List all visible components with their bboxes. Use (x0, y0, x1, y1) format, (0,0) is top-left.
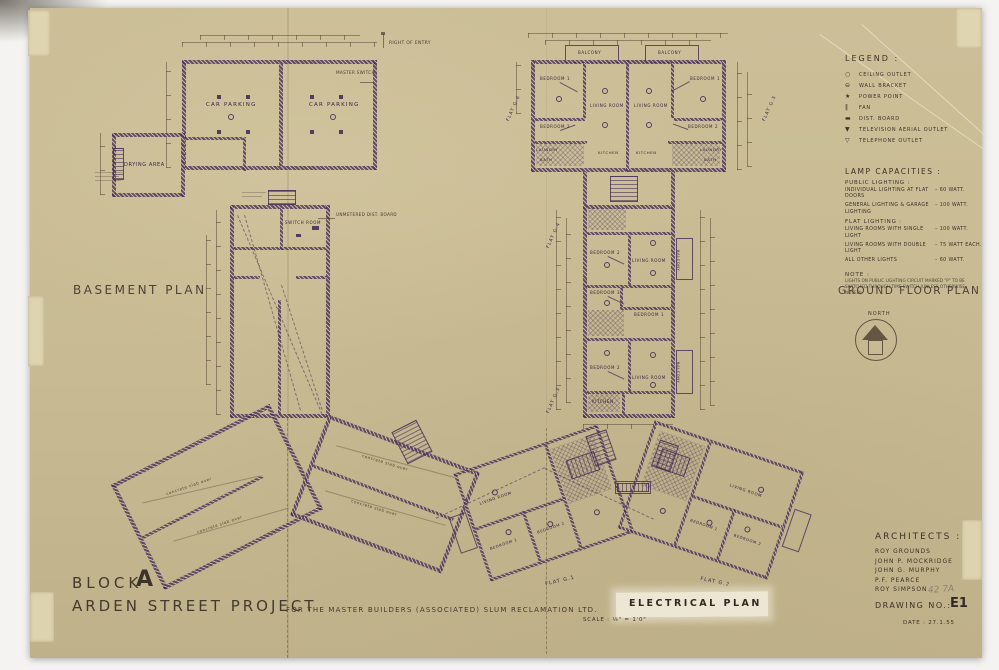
room-label-bedroom1: BEDROOM 1 (489, 537, 518, 551)
television-aerial-outlet-icon: ▼ (845, 126, 859, 133)
drawing-stroke: – 75 WATT EACH. (935, 243, 982, 256)
drawing-stroke (650, 270, 656, 276)
architect-name: JOHN P. MOCKRIDGE (875, 557, 961, 567)
drawing-stroke: GENERAL LIGHTING & GARAGE LIGHTING (845, 203, 935, 216)
drawing-stroke (862, 325, 888, 340)
drawing-stroke (583, 205, 587, 418)
drawing-stroke (744, 526, 752, 534)
lamp-row: GENERAL LIGHTING & GARAGE LIGHTING– 100 … (845, 203, 990, 216)
drawing-stroke (296, 276, 326, 279)
drawing-stroke (242, 192, 266, 193)
drawing-stroke (28, 10, 50, 56)
room-label-car-parking-left: CAR PARKING (206, 102, 257, 108)
drawing-stroke (628, 341, 631, 391)
legend-item-label: TELEVISION AERIAL OUTLET (859, 127, 948, 133)
drawing-stroke (95, 180, 121, 181)
drawing-stroke (246, 95, 250, 99)
drawing-stroke (505, 528, 513, 536)
drawing-stroke (30, 592, 54, 642)
lamp-row: INDIVIDUAL LIGHTING AT FLAT DOORS– 60 WA… (845, 188, 990, 201)
drawing-stroke (700, 210, 705, 410)
room-label-car-parking-right: CAR PARKING (309, 102, 360, 108)
room-label-bath: BATH (540, 157, 552, 162)
room-label-kitchen: KITCHEN (636, 150, 657, 155)
drawing-stroke (383, 34, 384, 48)
drawing-stroke (646, 122, 652, 128)
drawing-stroke (181, 133, 185, 197)
legend-item-label: CEILING OUTLET (859, 72, 911, 78)
block-letter: A (136, 567, 153, 592)
drawing-stroke (868, 340, 883, 355)
drawing-stroke (650, 382, 656, 388)
room-label-bedroom3: BEDROOM 3 (590, 290, 620, 295)
drawing-stroke (671, 172, 675, 205)
drawing-stroke (326, 205, 330, 418)
drawing-stroke (620, 307, 671, 310)
legend-item-label: WALL BRACKET (859, 83, 907, 89)
basement-plan-title: BASEMENT PLAN (73, 283, 207, 297)
drawing-stroke (587, 285, 671, 288)
room-label-living: LIVING ROOM (632, 375, 666, 380)
legend-item-label: POWER POINT (859, 94, 903, 100)
power-point-icon: ★ (845, 93, 859, 100)
room-label-bedroom2: BEDROOM 2 (590, 365, 620, 370)
public-lighting-heading: PUBLIC LIGHTING : (845, 180, 990, 186)
drawing-stroke (200, 35, 360, 40)
drawing-stroke (296, 234, 301, 237)
client-line: FOR THE MASTER BUILDERS (ASSOCIATED) SLU… (286, 606, 598, 614)
architect-name: ROY GROUNDS (875, 547, 961, 557)
drawing-stroke (246, 130, 250, 134)
drawing-stroke: LIVING ROOMS WITH SINGLE LIGHT (845, 227, 935, 240)
master-switch-note: MASTER SWITCH (336, 70, 376, 76)
scanned-drawing-photo: CAR PARKING CAR PARKING MASTER SWITCH RI… (0, 0, 999, 670)
legend-item: ▼TELEVISION AERIAL OUTLET (845, 124, 948, 135)
drawing-stroke (373, 60, 377, 170)
room-label-kitchen: KITCHEN (592, 399, 614, 404)
legend-title: LEGEND : (845, 54, 948, 63)
drawing-stroke: ALL OTHER LIGHTS (845, 258, 935, 264)
drawing-stroke (339, 95, 343, 99)
drawing-stroke (95, 172, 123, 173)
north-label: NORTH (868, 311, 891, 317)
drawing-stroke (659, 507, 667, 515)
drawing-stroke (528, 33, 728, 38)
drawing-stroke (566, 218, 571, 403)
drawing-stroke (583, 172, 587, 205)
drawing-stroke (650, 240, 656, 246)
concrete-slab-note: concrete slab over (196, 514, 243, 534)
drawing-stroke (626, 60, 629, 172)
drawing-stroke (650, 352, 656, 358)
drawing-no-label: DRAWING NO.: (875, 601, 952, 610)
drawing-stroke (604, 350, 610, 356)
date-label: DATE : 27.1.55 (903, 620, 955, 626)
drawing-stroke (710, 218, 715, 406)
drawing-stroke (95, 176, 119, 177)
legend-item: ▬DIST. BOARD (845, 113, 948, 124)
concrete-slab-note: concrete slab over (351, 498, 398, 517)
drawing-stroke (216, 210, 221, 415)
drawing-stroke (535, 118, 585, 121)
drawing-stroke (602, 122, 608, 128)
room-label-balcony: BALCONY (578, 50, 601, 55)
drawing-stroke (610, 176, 638, 202)
drawing-stroke (330, 114, 336, 120)
drawing-stroke (166, 62, 171, 168)
drawing-no-value: E1 (950, 596, 968, 611)
drawing-stroke (583, 63, 586, 118)
drawing-stroke (646, 88, 652, 94)
lamp-row: LIVING ROOMS WITH SINGLE LIGHT– 100 WATT… (845, 227, 990, 240)
drawing-stroke (674, 118, 722, 121)
drawing-stroke (593, 508, 601, 516)
fan-icon: ‖ (845, 104, 859, 111)
drawing-stroke (185, 137, 245, 140)
lamp-capacities: LAMP CAPACITIES : PUBLIC LIGHTING : INDI… (845, 167, 990, 297)
wall-bracket-icon: ⊖ (845, 82, 859, 89)
room-label-drying-area: DRYING AREA (124, 162, 165, 168)
ground-floor-plan-title: GROUND FLOOR PLAN (838, 285, 980, 297)
dist-board-icon: ▬ (845, 115, 859, 122)
legend: LEGEND : ○CEILING OUTLET ⊖WALL BRACKET ★… (845, 54, 948, 146)
drawing-stroke (962, 520, 982, 580)
drawing-stroke (228, 114, 234, 120)
drawing-stroke (182, 42, 377, 47)
drawing-stroke (956, 8, 982, 48)
drawing-stroke: LIVING ROOMS WITH DOUBLE LIGHT (845, 243, 935, 256)
legend-item: ▽TELEPHONE OUTLET (845, 135, 948, 146)
drawing-stroke (242, 196, 262, 197)
telephone-outlet-icon: ▽ (845, 137, 859, 144)
legend-item: ★POWER POINT (845, 91, 948, 102)
drawing-stroke (604, 300, 610, 306)
room-label-bedroom1: BEDROOM 1 (540, 76, 570, 81)
drawing-stroke (556, 96, 562, 102)
drawing-stroke: – 60 WATT. (935, 258, 965, 264)
drawing-stroke (546, 428, 547, 654)
drawing-stroke (360, 82, 374, 83)
drawing-stroke (522, 511, 542, 562)
legend-item: ⊖WALL BRACKET (845, 80, 948, 91)
drawing-stroke: – 60 WATT. (935, 188, 965, 201)
drawing-stroke: – 100 WATT. (935, 203, 968, 216)
room-label-living: LIVING ROOM (590, 103, 624, 108)
architects-title: ARCHITECTS : (875, 532, 961, 542)
legend-item-label: TELEPHONE OUTLET (859, 138, 923, 144)
room-label-living: LIVING ROOM (632, 258, 666, 263)
drawing-stroke (206, 235, 211, 385)
drawing-stroke (737, 62, 742, 170)
room-label-laundry: LAUNDRY (700, 147, 722, 152)
drawing-stroke: – 100 WATT. (935, 227, 968, 240)
lamp-row: LIVING ROOMS WITH DOUBLE LIGHT– 75 WATT … (845, 243, 990, 256)
drawing-stroke (556, 210, 561, 410)
room-label-bath: BATH (704, 157, 716, 162)
room-label-bedroom1: BEDROOM 1 (634, 312, 664, 317)
drawing-stroke (628, 235, 631, 285)
drawing-stroke (312, 226, 319, 230)
room-label-laundry: LAUNDRY (536, 147, 558, 152)
drawing-stroke (722, 60, 726, 172)
concrete-slab-note: concrete slab over (165, 476, 212, 496)
room-label-bedroom2: BEDROOM 2 (733, 532, 762, 546)
drawing-stroke (217, 95, 221, 99)
drawing-stroke (310, 130, 314, 134)
drawing-stroke (112, 193, 185, 197)
drawing-stroke: INDIVIDUAL LIGHTING AT FLAT DOORS (845, 188, 935, 201)
drawing-stroke (700, 96, 706, 102)
drawing-stroke (279, 64, 283, 166)
pencil-annotation: 42 7A (928, 584, 955, 596)
architect-name: JOHN G. MURPHY (875, 566, 961, 576)
room-label-balcony: BALCONY (676, 250, 680, 271)
lamp-capacities-title: LAMP CAPACITIES : (845, 167, 990, 176)
drawing-stroke (268, 190, 296, 205)
right-of-entry-note: RIGHT OF ENTRY (389, 41, 431, 46)
drawing-stroke (671, 205, 675, 418)
drawing-stroke (230, 205, 234, 418)
drawing-stroke (622, 394, 625, 414)
drawing-stroke (381, 32, 385, 35)
drawing-stroke (28, 296, 44, 366)
drawing-stroke (318, 218, 335, 219)
drawing-stroke (583, 414, 675, 418)
drawing-stroke (243, 137, 246, 171)
drawing-stroke (747, 72, 752, 167)
drawing-stroke (217, 130, 221, 134)
room-label-balcony: BALCONY (676, 362, 680, 383)
drawing-stroke (234, 276, 260, 279)
lamp-row: ALL OTHER LIGHTS– 60 WATT. (845, 258, 990, 264)
drawing-stroke (280, 208, 283, 250)
block-word: BLOCK (72, 574, 142, 592)
drawing-stroke (310, 95, 314, 99)
room-label-bedroom2: BEDROOM 2 (688, 124, 718, 129)
room-label-bedroom1: BEDROOM 1 (690, 76, 720, 81)
unmetered-dist-board-note: UNMETERED DIST. BOARD (336, 212, 397, 217)
ceiling-outlet-icon: ○ (845, 71, 859, 78)
drawing-stroke (531, 60, 535, 172)
legend-item: ‖FAN (845, 102, 948, 113)
drawing-stroke (588, 310, 624, 336)
room-label-bedroom1: BEDROOM 1 (690, 518, 719, 532)
drawing-stroke (100, 133, 105, 195)
drawing-stroke (182, 166, 377, 170)
legend-item: ○CEILING OUTLET (845, 69, 948, 80)
room-label-switch-room: SWITCH ROOM (285, 220, 321, 225)
room-label-kitchen: KITCHEN (598, 150, 619, 155)
room-label-balcony: BALCONY (658, 50, 681, 55)
drawing-stroke (602, 88, 608, 94)
room-label-living: LIVING ROOM (634, 103, 668, 108)
legend-item-label: FAN (859, 105, 871, 111)
project-title: ARDEN STREET PROJECT (72, 597, 317, 615)
drawing-stroke (339, 130, 343, 134)
flat-lighting-heading: FLAT LIGHTING : (845, 219, 990, 225)
drawing-stroke (604, 262, 610, 268)
plan-name: ELECTRICAL PLAN (629, 598, 762, 609)
drawing-stroke (617, 483, 649, 492)
legend-item-label: DIST. BOARD (859, 116, 900, 122)
scale-label: SCALE : ⅛" = 1'0" (583, 617, 647, 623)
drawing-stroke (588, 208, 626, 230)
room-label-bedroom2: BEDROOM 2 (590, 250, 620, 255)
drawing-stroke (112, 133, 185, 137)
